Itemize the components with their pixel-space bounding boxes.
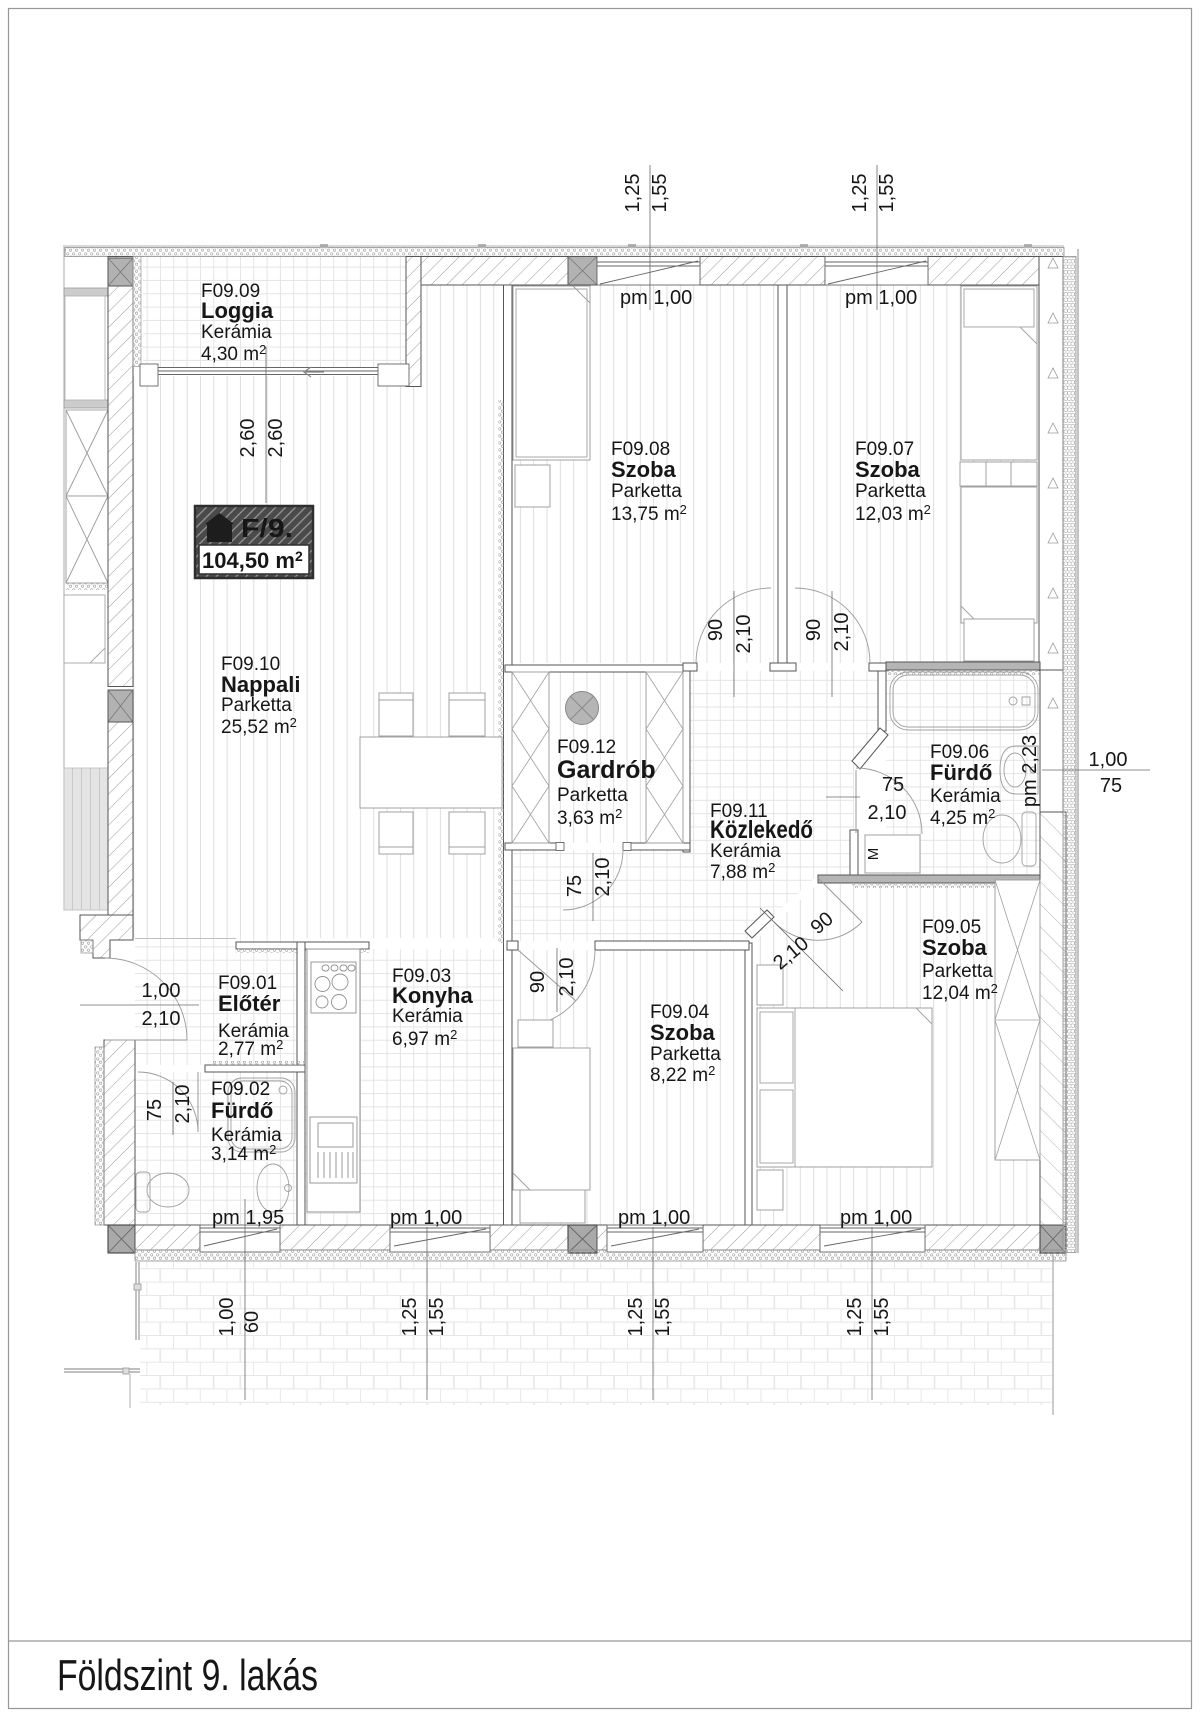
svg-text:F09.02: F09.02 bbox=[211, 1079, 270, 1100]
svg-text:M: M bbox=[865, 848, 882, 861]
svg-text:75: 75 bbox=[882, 774, 904, 796]
svg-text:1,25: 1,25 bbox=[625, 1298, 647, 1337]
svg-text:Parketta: Parketta bbox=[611, 481, 682, 502]
svg-text:Kerámia: Kerámia bbox=[930, 786, 1001, 807]
svg-text:1,55: 1,55 bbox=[649, 174, 671, 213]
svg-text:Közlekedő: Közlekedő bbox=[710, 816, 813, 844]
svg-text:pm 1,00: pm 1,00 bbox=[845, 287, 917, 309]
svg-text:3,63 m2: 3,63 m2 bbox=[557, 806, 622, 829]
svg-text:pm 1,00: pm 1,00 bbox=[618, 1207, 690, 1229]
svg-text:Kerámia: Kerámia bbox=[201, 322, 272, 343]
svg-text:12,03 m2: 12,03 m2 bbox=[855, 502, 931, 525]
svg-text:1,55: 1,55 bbox=[426, 1298, 448, 1337]
svg-text:7,88 m2: 7,88 m2 bbox=[710, 860, 775, 883]
svg-text:Parketta: Parketta bbox=[650, 1044, 721, 1065]
svg-text:F09.12: F09.12 bbox=[557, 737, 616, 758]
svg-text:1,00: 1,00 bbox=[142, 980, 181, 1002]
svg-text:Nappali: Nappali bbox=[221, 672, 300, 697]
svg-text:4,25 m2: 4,25 m2 bbox=[930, 806, 995, 829]
svg-text:Fürdő: Fürdő bbox=[930, 760, 992, 785]
svg-text:1,55: 1,55 bbox=[652, 1298, 674, 1337]
svg-text:1,00: 1,00 bbox=[216, 1298, 238, 1337]
svg-text:Parketta: Parketta bbox=[557, 785, 628, 806]
svg-text:8,22 m2: 8,22 m2 bbox=[650, 1063, 715, 1086]
svg-text:75: 75 bbox=[144, 1099, 166, 1121]
svg-text:Kerámia: Kerámia bbox=[392, 1006, 463, 1027]
svg-text:2,10: 2,10 bbox=[142, 1008, 181, 1030]
svg-text:Szoba: Szoba bbox=[855, 457, 921, 482]
svg-text:1,55: 1,55 bbox=[871, 1298, 893, 1337]
svg-text:2,60: 2,60 bbox=[237, 419, 259, 458]
svg-text:90: 90 bbox=[803, 619, 825, 641]
svg-text:Loggia: Loggia bbox=[201, 298, 274, 323]
svg-text:2,10: 2,10 bbox=[172, 1085, 194, 1124]
svg-text:1,00: 1,00 bbox=[1089, 749, 1128, 771]
svg-text:Szoba: Szoba bbox=[611, 457, 677, 482]
svg-text:pm 1,00: pm 1,00 bbox=[390, 1207, 462, 1229]
svg-text:2,10: 2,10 bbox=[733, 615, 755, 654]
svg-text:3,14 m2: 3,14 m2 bbox=[211, 1142, 276, 1165]
svg-text:2,10: 2,10 bbox=[592, 858, 614, 897]
svg-text:Parketta: Parketta bbox=[922, 961, 993, 982]
svg-text:pm 1,00: pm 1,00 bbox=[620, 287, 692, 309]
svg-text:F/9.: F/9. bbox=[241, 513, 293, 543]
svg-text:90: 90 bbox=[705, 619, 727, 641]
svg-text:4,30 m2: 4,30 m2 bbox=[201, 342, 266, 365]
svg-text:13,75 m2: 13,75 m2 bbox=[611, 502, 687, 525]
svg-text:Fürdő: Fürdő bbox=[211, 1098, 273, 1123]
svg-text:2,60: 2,60 bbox=[265, 419, 287, 458]
svg-text:12,04 m2: 12,04 m2 bbox=[922, 981, 998, 1004]
svg-text:Szoba: Szoba bbox=[650, 1020, 716, 1045]
svg-text:75: 75 bbox=[564, 875, 586, 897]
svg-text:Földszint 9. lakás: Földszint 9. lakás bbox=[57, 1651, 318, 1700]
svg-text:Parketta: Parketta bbox=[221, 695, 292, 716]
svg-text:1,25: 1,25 bbox=[849, 174, 871, 213]
svg-text:Szoba: Szoba bbox=[922, 935, 988, 960]
svg-text:2,77 m2: 2,77 m2 bbox=[218, 1037, 283, 1060]
svg-text:104,50 m2: 104,50 m2 bbox=[202, 548, 303, 573]
svg-text:1,25: 1,25 bbox=[844, 1298, 866, 1337]
svg-text:6,97 m2: 6,97 m2 bbox=[392, 1027, 457, 1050]
svg-text:Gardrób: Gardrób bbox=[557, 756, 656, 784]
svg-text:25,52 m2: 25,52 m2 bbox=[221, 715, 297, 738]
svg-text:Kerámia: Kerámia bbox=[710, 841, 781, 862]
svg-text:pm 2,23: pm 2,23 bbox=[1019, 735, 1041, 807]
svg-text:75: 75 bbox=[1100, 775, 1122, 797]
svg-text:2,10: 2,10 bbox=[831, 613, 853, 652]
svg-text:Konyha: Konyha bbox=[392, 983, 473, 1008]
svg-text:Előtér: Előtér bbox=[218, 991, 281, 1016]
svg-text:1,25: 1,25 bbox=[399, 1298, 421, 1337]
svg-text:1,55: 1,55 bbox=[876, 174, 898, 213]
svg-text:60: 60 bbox=[241, 1311, 263, 1333]
svg-text:90: 90 bbox=[527, 971, 549, 993]
svg-text:pm 1,00: pm 1,00 bbox=[840, 1207, 912, 1229]
svg-text:2,10: 2,10 bbox=[868, 802, 907, 824]
svg-text:2,10: 2,10 bbox=[556, 958, 578, 997]
svg-text:1,25: 1,25 bbox=[622, 174, 644, 213]
svg-text:Parketta: Parketta bbox=[855, 481, 926, 502]
svg-text:pm 1,95: pm 1,95 bbox=[212, 1207, 284, 1229]
